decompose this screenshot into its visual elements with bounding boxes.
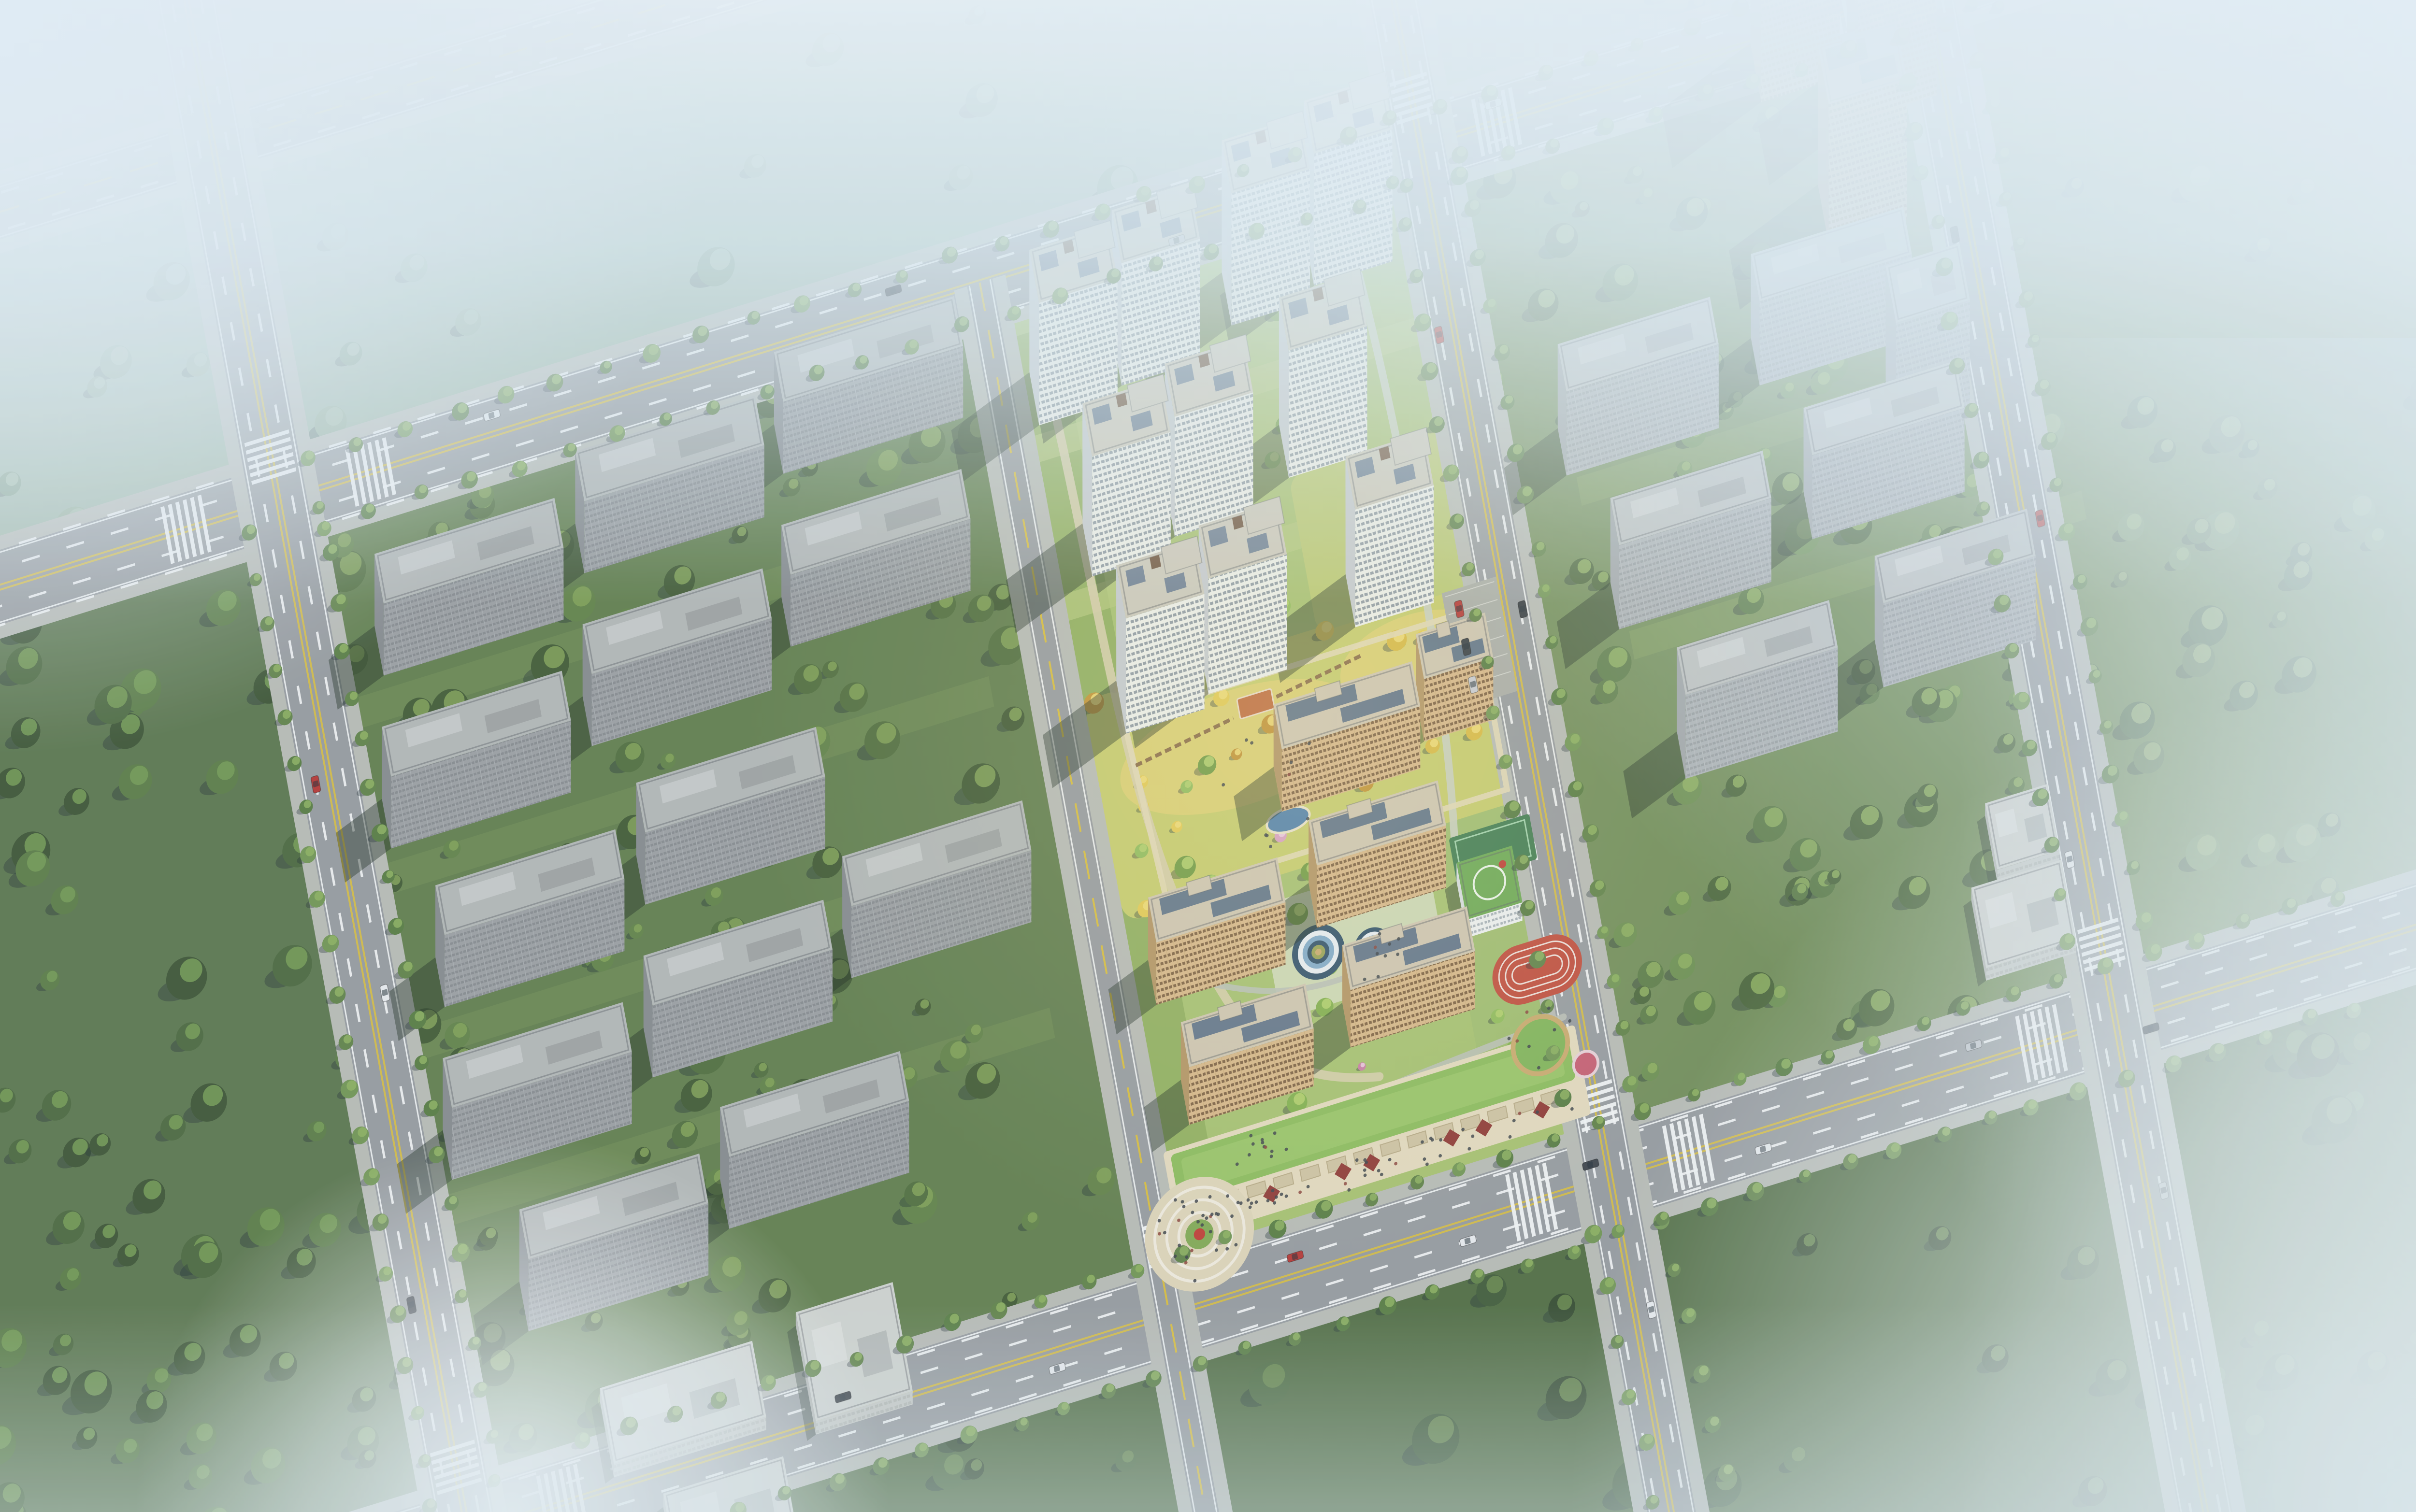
scene-svg (0, 0, 2416, 1512)
aerial-architectural-rendering (0, 0, 2416, 1512)
